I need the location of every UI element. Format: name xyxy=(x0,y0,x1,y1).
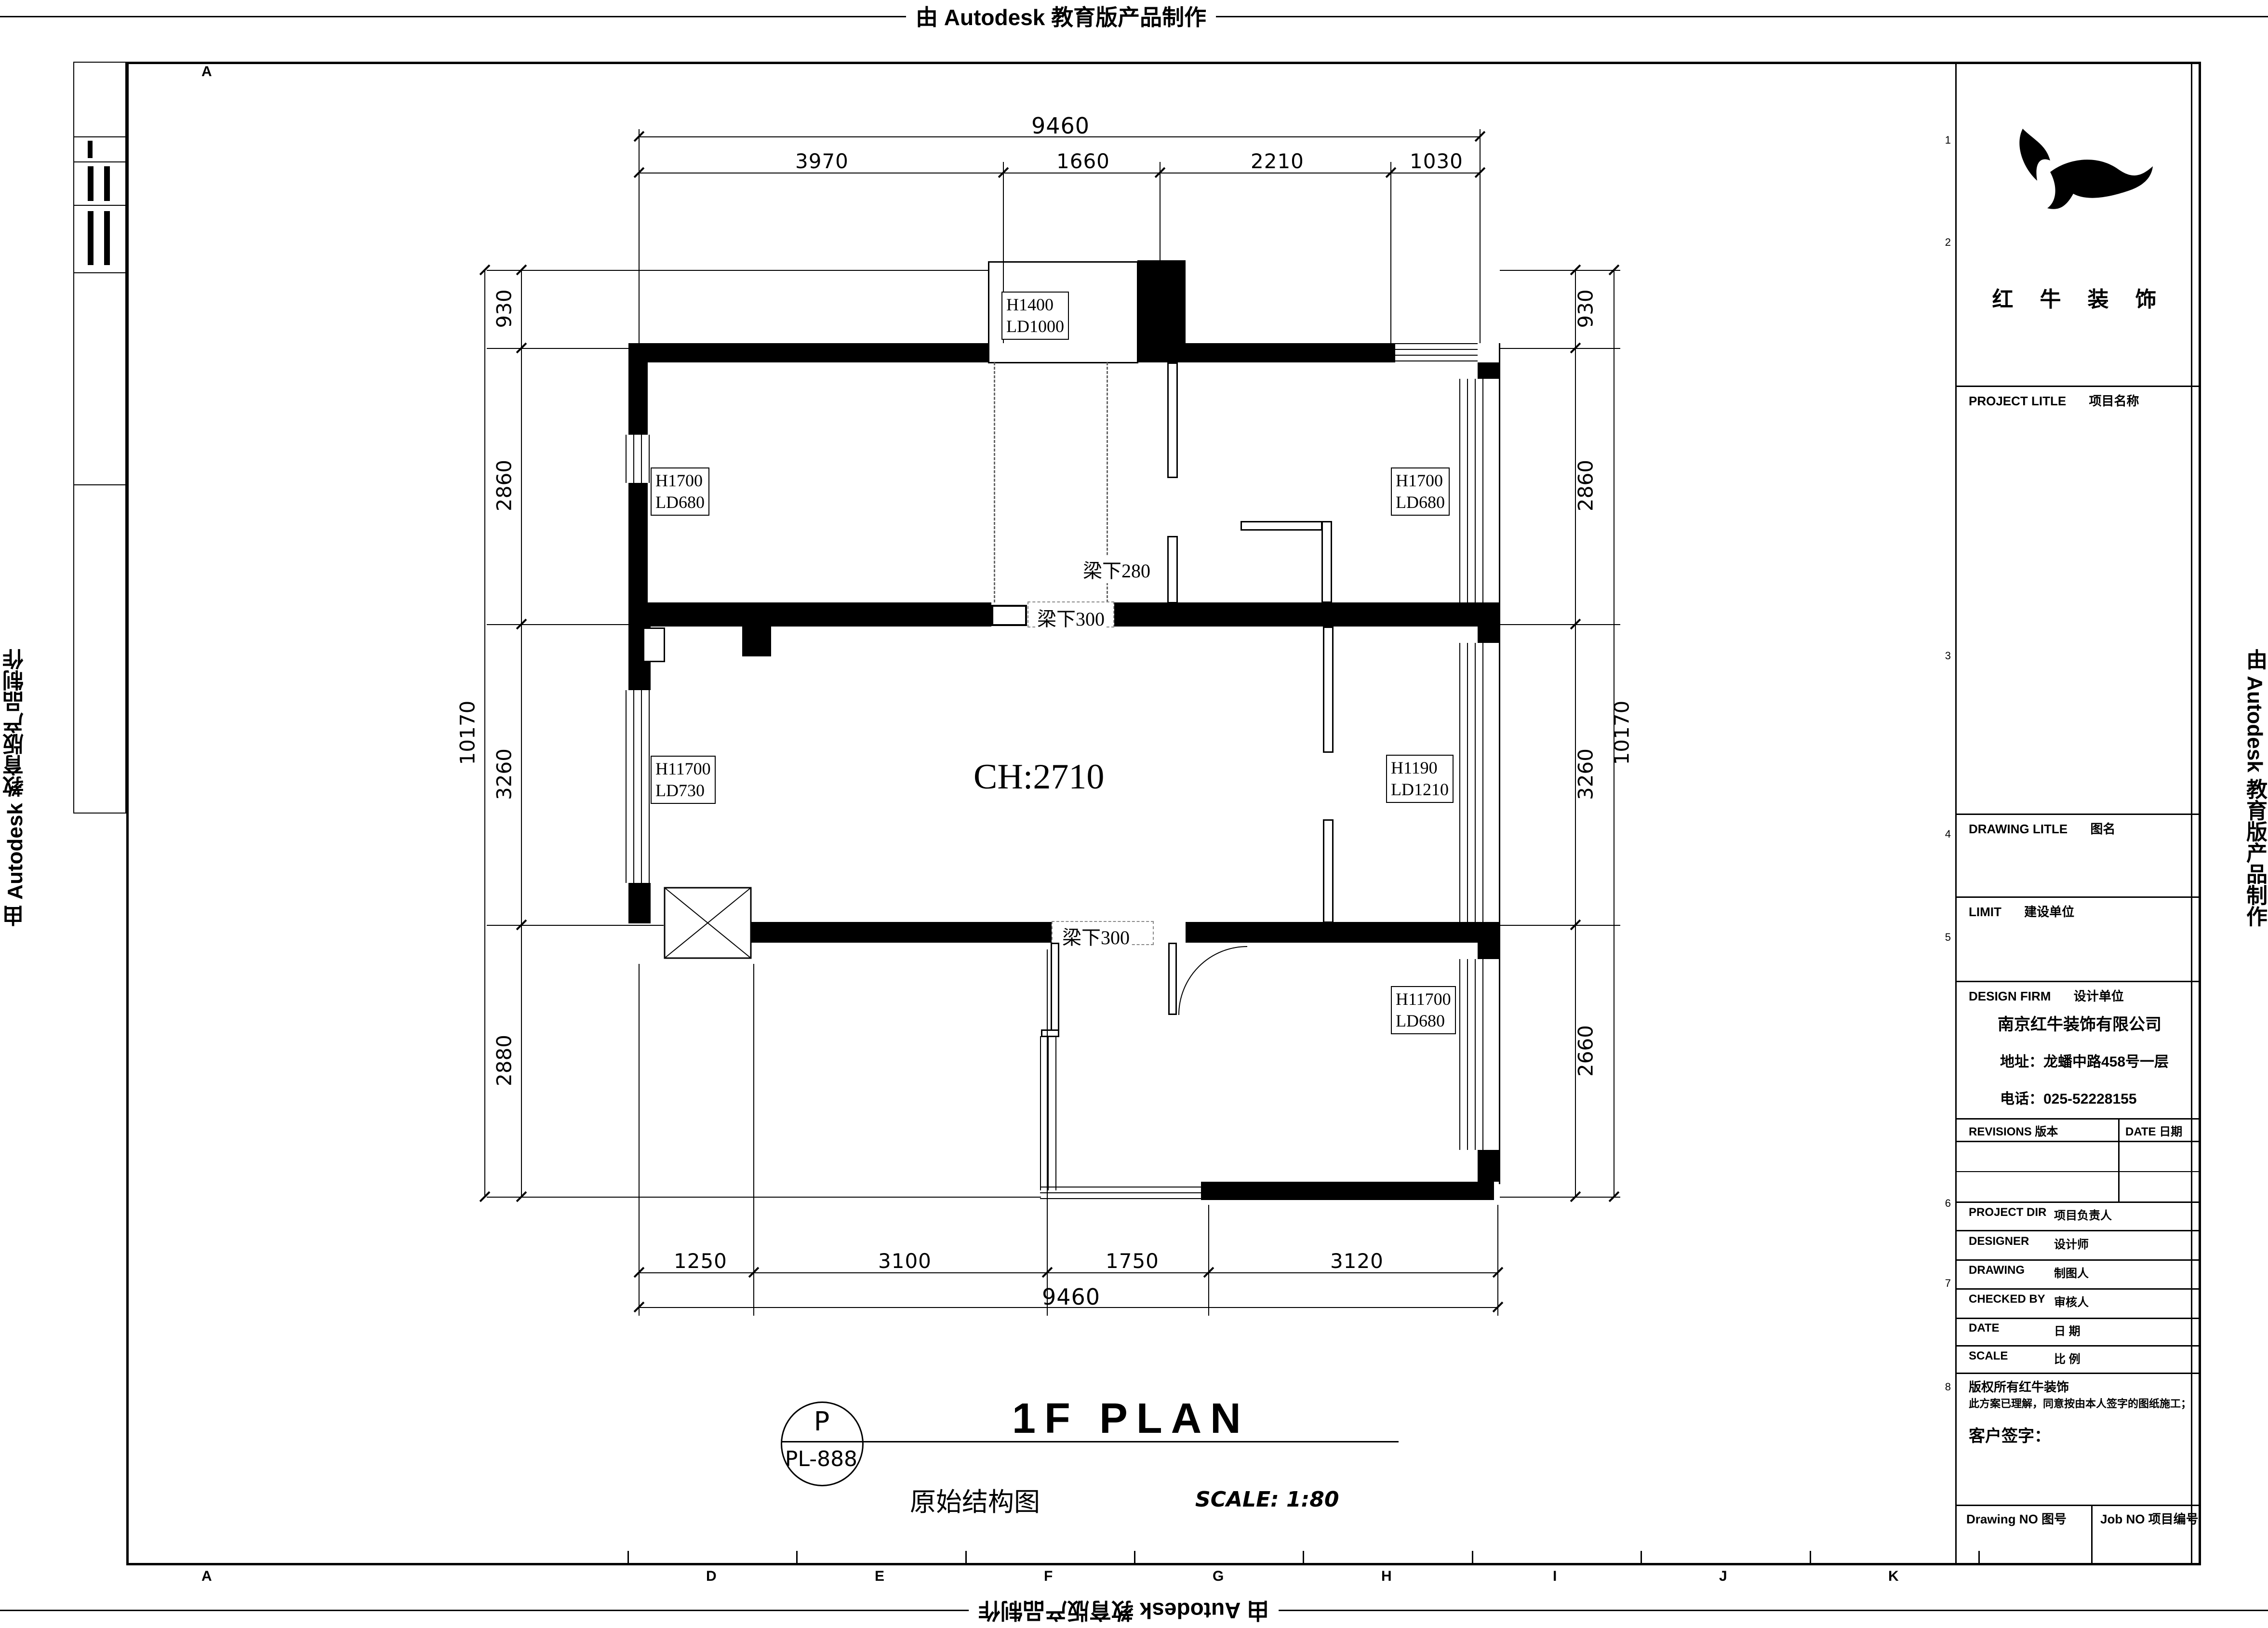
autodesk-banner-top: 由 Autodesk 教育版产品制作 xyxy=(906,0,1216,32)
partition xyxy=(1241,521,1322,531)
ext-line xyxy=(487,270,988,271)
dim-top-seg: 1030 xyxy=(1410,149,1463,173)
ext-line xyxy=(487,1197,1041,1198)
left-strip-text-mark xyxy=(88,166,93,201)
window-right-3 xyxy=(1459,959,1483,1150)
titleblock-divider xyxy=(1955,1201,2201,1203)
window-bottom xyxy=(1040,1187,1204,1200)
left-strip-text-mark xyxy=(104,166,110,201)
drawing-label: DRAWING xyxy=(1969,1264,2025,1277)
ext-line xyxy=(753,964,754,1316)
project-dir-label: PROJECT DIR xyxy=(1969,1206,2046,1219)
ext-line xyxy=(1497,1205,1498,1316)
wall-main-h3 xyxy=(1113,602,1500,627)
room-label-h: H1190 xyxy=(1391,757,1449,779)
dim-top-seg: 1660 xyxy=(1056,149,1110,173)
titleblock-divider xyxy=(1955,1345,2201,1347)
left-strip-divider xyxy=(73,205,126,206)
window-right-2 xyxy=(1459,643,1483,922)
grid-letter: E xyxy=(875,1568,884,1585)
dim-line-left-segs xyxy=(521,270,522,1197)
grid-letter-top-a: A xyxy=(201,64,212,80)
autodesk-banner-right: 由 Autodesk 教育版产品制作 xyxy=(2239,641,2268,934)
dim-right-seg: 2660 xyxy=(1574,1008,1598,1094)
project-title-en: PROJECT LITLE xyxy=(1969,394,2066,408)
door-swing-arc xyxy=(1177,945,1249,1017)
ext-line xyxy=(1500,270,1620,271)
grid-letter: K xyxy=(1888,1568,1899,1585)
room-label-ld: LD680 xyxy=(1396,492,1445,513)
room-label: H1190 LD1210 xyxy=(1386,755,1454,803)
wall-top-left xyxy=(628,343,988,362)
project-dir-cn: 项目负责人 xyxy=(2054,1206,2112,1223)
client-en: LIMIT xyxy=(1969,905,2001,919)
wall-bottom xyxy=(1201,1182,1494,1200)
titleblock-divider xyxy=(1955,1505,2201,1506)
brand-name: 红 牛 装 饰 xyxy=(1964,282,2195,313)
grid-number: 8 xyxy=(1936,1381,1951,1393)
partition xyxy=(1167,536,1178,603)
autodesk-banner-bottom: 由 Autodesk 教育版产品制作 xyxy=(969,1596,1279,1628)
drawing-cn: 制图人 xyxy=(2054,1264,2089,1281)
wall-shaft-pier xyxy=(1137,260,1186,362)
wall-main-h2 xyxy=(771,602,991,627)
job-no-label: Job NO 项目编号 xyxy=(2100,1509,2199,1527)
ext-line xyxy=(1500,624,1620,625)
copyright-note: 版权所有红牛装饰 xyxy=(1969,1377,2069,1395)
room-label-h: H1400 xyxy=(1006,294,1064,316)
room-label-h: H11700 xyxy=(655,758,711,780)
titleblock-divider xyxy=(1955,1171,2201,1172)
project-title-cn: 项目名称 xyxy=(2089,394,2139,408)
door-main-wall xyxy=(991,605,1027,626)
beam-label-280: 梁下280 xyxy=(1081,555,1152,583)
ext-line xyxy=(1500,1197,1620,1198)
client-row: LIMIT 建设单位 xyxy=(1969,902,2074,920)
scale-cn: 比 例 xyxy=(2054,1349,2081,1366)
room-label-ld: LD730 xyxy=(655,780,711,801)
left-strip-text-mark xyxy=(88,211,93,265)
titleblock-divider xyxy=(1955,1230,2201,1231)
title-bubble-code: PL-888 xyxy=(785,1447,858,1471)
date-header: DATE 日期 xyxy=(2125,1122,2182,1139)
ext-line xyxy=(1480,129,1481,343)
ext-line xyxy=(487,624,628,625)
client-signature-label: 客户签字： xyxy=(1969,1423,2051,1446)
room-label: H11700 LD730 xyxy=(651,756,716,804)
plan-title: 1F PLAN xyxy=(1012,1394,1250,1443)
checked-by-label: CHECKED BY xyxy=(1969,1293,2045,1306)
design-firm-cn: 设计单位 xyxy=(2074,989,2124,1003)
dim-bottom-overall: 9460 xyxy=(1042,1284,1100,1310)
wall-right-pier xyxy=(1478,362,1500,379)
left-strip-divider xyxy=(73,272,126,273)
beam-label-300b: 梁下300 xyxy=(1060,922,1132,950)
grid-tick xyxy=(965,1551,967,1565)
titleblock-divider xyxy=(1955,1288,2201,1290)
drawing-title-row: DRAWING LITLE 图名 xyxy=(1969,819,2115,837)
room-label-ld: LD680 xyxy=(1396,1010,1451,1032)
plan-scale: SCALE: 1:80 xyxy=(1195,1487,1339,1512)
room-label: H1700 LD680 xyxy=(1391,467,1450,516)
ext-line xyxy=(1390,162,1391,343)
client-cn: 建设单位 xyxy=(2024,905,2074,919)
partition xyxy=(1323,819,1334,923)
grid-number: 3 xyxy=(1936,650,1951,662)
drawing-no-label: Drawing NO 图号 xyxy=(1966,1509,2067,1527)
dim-line-left-overall xyxy=(484,270,485,1197)
grid-letter: G xyxy=(1213,1568,1224,1585)
left-strip-divider xyxy=(73,136,126,137)
dim-top-seg: 3970 xyxy=(795,149,849,173)
grid-number: 6 xyxy=(1936,1197,1951,1210)
outer-face-right xyxy=(1499,343,1500,1184)
designer-cn: 设计师 xyxy=(2054,1235,2089,1252)
room-label: H1400 LD1000 xyxy=(1001,292,1069,340)
autodesk-banner-left: 由 Autodesk 教育版产品制作 xyxy=(0,641,31,934)
drawing-title-cn: 图名 xyxy=(2090,822,2115,836)
titleblock-divider xyxy=(1955,1118,2201,1120)
window-left-2 xyxy=(626,690,650,883)
grid-tick xyxy=(1641,1551,1642,1565)
ceiling-height: CH:2710 xyxy=(974,757,1104,798)
revisions-column-divider xyxy=(2118,1118,2120,1201)
dim-top-overall: 9460 xyxy=(1031,113,1090,139)
door-jamb xyxy=(1168,943,1177,1015)
partition xyxy=(1167,362,1178,478)
dim-left-seg: 930 xyxy=(493,266,516,352)
grid-letter: J xyxy=(1719,1568,1727,1585)
title-bubble-letter: P xyxy=(800,1406,843,1437)
ext-line xyxy=(639,964,640,1316)
grid-number: 2 xyxy=(1936,236,1951,249)
beam-label-300a: 梁下300 xyxy=(1035,603,1107,631)
room-label-ld: LD1000 xyxy=(1006,316,1064,337)
dim-bottom-seg: 1750 xyxy=(1106,1249,1159,1273)
dim-left-seg: 2880 xyxy=(493,1017,516,1104)
project-title-row: PROJECT LITLE 项目名称 xyxy=(1969,391,2139,409)
grid-letter: D xyxy=(706,1568,717,1585)
window-right-1 xyxy=(1459,379,1483,602)
dim-bottom-seg: 3120 xyxy=(1330,1249,1384,1273)
dim-left-overall: 10170 xyxy=(456,690,480,776)
wall-right-pier xyxy=(1478,943,1500,959)
room-label-h: H11700 xyxy=(1396,988,1451,1010)
titleblock-divider xyxy=(1955,1373,2201,1374)
grid-number: 7 xyxy=(1936,1277,1951,1290)
wall-second-h2 xyxy=(1186,922,1500,943)
wall-left-upper xyxy=(628,343,648,435)
wall-second-h1 xyxy=(748,922,1052,943)
left-strip-text-mark xyxy=(88,141,93,158)
wall-main-h1 xyxy=(628,602,744,627)
date-label: DATE xyxy=(1969,1321,2000,1335)
grid-tick xyxy=(1810,1551,1811,1565)
cad-sheet: { "banner": { "text": "由 Autodesk 教育版产品制… xyxy=(0,0,2268,1625)
room-label-ld: LD1210 xyxy=(1391,779,1449,801)
company-name: 南京红牛装饰有限公司 xyxy=(1969,1011,2190,1035)
ext-line xyxy=(639,129,640,343)
plan-subtitle: 原始结构图 xyxy=(910,1481,1040,1519)
grid-tick xyxy=(1978,1551,1980,1565)
dim-left-seg: 2860 xyxy=(493,442,516,529)
wall-top-right xyxy=(1186,343,1395,362)
wall-right-pier xyxy=(1478,1150,1500,1182)
left-strip-text-mark xyxy=(104,211,110,265)
dim-right-seg: 3260 xyxy=(1574,731,1598,818)
grid-letter: A xyxy=(201,1568,212,1585)
grid-number: 4 xyxy=(1936,828,1951,841)
left-strip-divider xyxy=(73,484,126,485)
titleblock-divider xyxy=(1955,1318,2201,1319)
grid-tick xyxy=(1134,1551,1135,1565)
grid-tick xyxy=(1472,1551,1473,1565)
titleblock-divider xyxy=(1955,896,2201,898)
left-strip xyxy=(73,62,126,814)
wall-main-pier xyxy=(742,602,771,656)
design-firm-en: DESIGN FIRM xyxy=(1969,989,2051,1003)
dim-left-seg: 3260 xyxy=(493,731,516,818)
grid-tick xyxy=(1303,1551,1304,1565)
agreement-note: 此方案已理解，同意按由本人签字的图纸施工； xyxy=(1969,1395,2199,1411)
flue-xbox xyxy=(664,887,752,959)
grid-letter: H xyxy=(1381,1568,1392,1585)
ext-line xyxy=(1500,348,1620,349)
partition xyxy=(1051,943,1059,1031)
room-label: H1700 LD680 xyxy=(651,467,709,516)
titleblock-divider xyxy=(1955,1259,2201,1261)
room-label-h: H1700 xyxy=(1396,470,1445,492)
beam-dashed-1 xyxy=(994,362,995,602)
dim-right-seg: 2860 xyxy=(1574,442,1598,529)
grid-number: 5 xyxy=(1936,931,1951,944)
window-top-right xyxy=(1395,343,1478,362)
room-label-ld: LD680 xyxy=(655,492,705,513)
titleblock-divider xyxy=(1955,1141,2201,1142)
drawingno-column-divider xyxy=(2091,1505,2093,1565)
drawing-title-en: DRAWING LITLE xyxy=(1969,822,2068,836)
dim-bottom-seg: 3100 xyxy=(878,1249,932,1273)
titleblock-divider xyxy=(1955,386,2201,387)
partition xyxy=(1321,521,1332,603)
wall-left-lower-pier2 xyxy=(628,883,651,923)
room-label: H11700 LD680 xyxy=(1391,986,1456,1034)
ext-line xyxy=(1047,949,1048,1316)
ext-line xyxy=(1208,1205,1209,1316)
door-left-room xyxy=(643,627,665,662)
titleblock-divider xyxy=(1955,814,2201,815)
grid-letter: F xyxy=(1044,1568,1053,1585)
titleblock-divider xyxy=(1955,981,2201,982)
grid-number: 1 xyxy=(1936,134,1951,147)
partition xyxy=(1323,627,1334,753)
company-phone: 电话：025-52228155 xyxy=(2000,1087,2137,1108)
partition xyxy=(1041,1029,1059,1037)
designer-label: DESIGNER xyxy=(1969,1235,2029,1248)
grid-tick xyxy=(796,1551,798,1565)
design-firm-row: DESIGN FIRM 设计单位 xyxy=(1969,987,2124,1004)
dim-bottom-seg: 1250 xyxy=(674,1249,727,1273)
ext-line xyxy=(1500,925,1620,926)
window-bottom-left xyxy=(1040,1036,1061,1190)
scale-label: SCALE xyxy=(1969,1349,2008,1363)
ext-line xyxy=(1160,162,1161,261)
redniu-logo xyxy=(2002,123,2169,267)
ext-line xyxy=(487,925,664,926)
date-cn: 日 期 xyxy=(2054,1321,2081,1338)
left-strip-divider xyxy=(73,161,126,162)
grid-tick xyxy=(627,1551,629,1565)
grid-letter: I xyxy=(1553,1568,1557,1585)
dim-right-seg: 930 xyxy=(1574,266,1598,352)
window-left-1 xyxy=(626,435,650,483)
room-label-h: H1700 xyxy=(655,470,705,492)
dim-top-seg: 2210 xyxy=(1251,149,1304,173)
wall-right-pier xyxy=(1478,627,1500,643)
revisions-header: REVISIONS 版本 xyxy=(1969,1122,2058,1139)
dim-right-overall: 10170 xyxy=(1610,690,1634,776)
checked-by-cn: 审核人 xyxy=(2054,1293,2089,1309)
company-address: 地址：龙蟠中路458号一层 xyxy=(2000,1050,2169,1071)
